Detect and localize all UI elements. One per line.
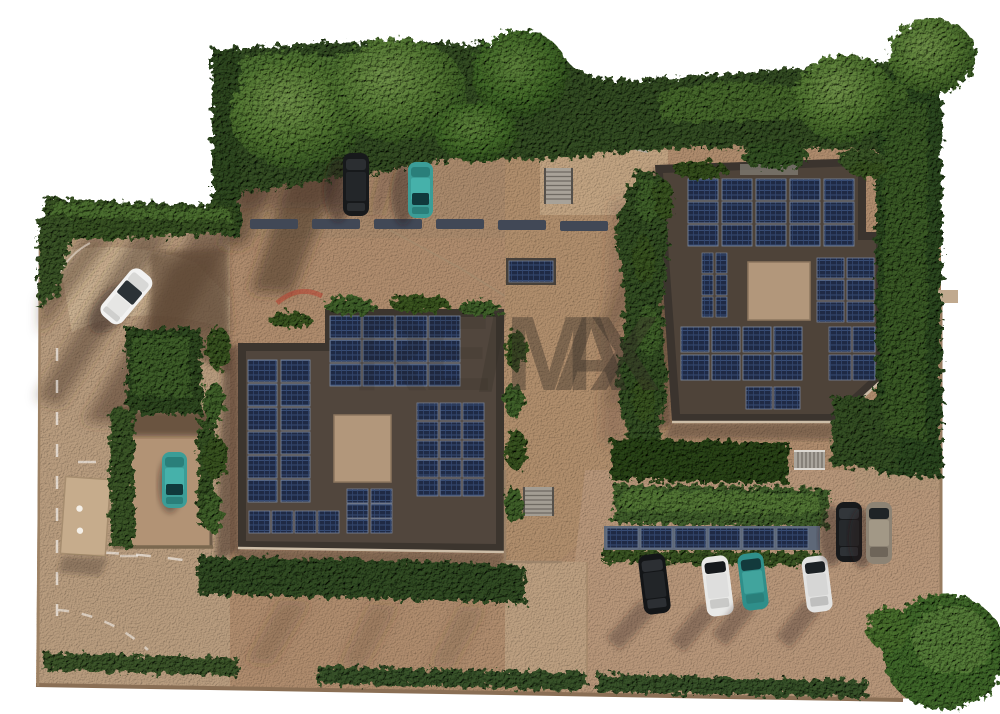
svg-text:MAX: MAX xyxy=(505,295,660,413)
svg-text:RE: RE xyxy=(352,295,492,413)
svg-text:/: / xyxy=(478,295,507,413)
